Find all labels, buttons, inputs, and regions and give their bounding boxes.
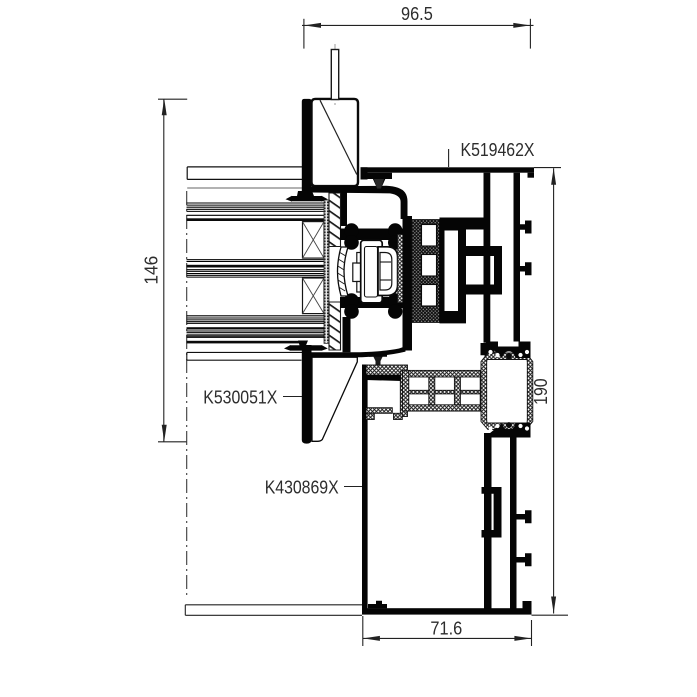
svg-text:K430869X: K430869X [265, 477, 339, 498]
svg-text:71.6: 71.6 [430, 618, 462, 638]
svg-text:190: 190 [531, 378, 551, 405]
svg-text:146: 146 [142, 256, 162, 285]
svg-text:K519462X: K519462X [461, 139, 535, 160]
svg-text:96.5: 96.5 [401, 4, 433, 24]
svg-text:K530051X: K530051X [203, 387, 277, 408]
